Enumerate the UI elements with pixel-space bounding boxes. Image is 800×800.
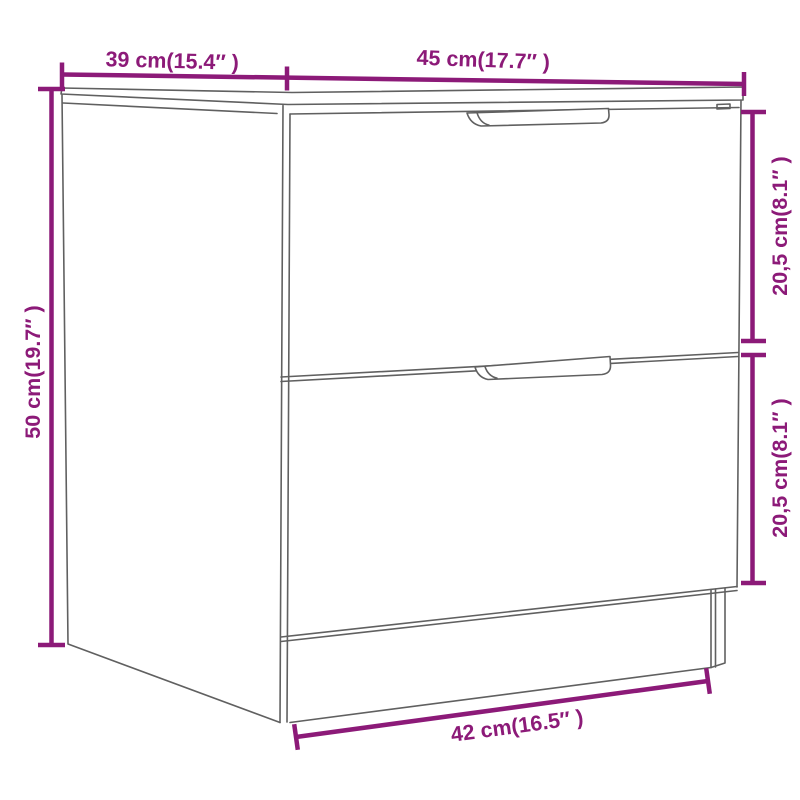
dimension-left: 50 cm(19.7″ ) bbox=[21, 89, 65, 645]
top-panel-outline bbox=[61, 87, 743, 105]
dimension-bottom-tick-right bbox=[706, 668, 710, 694]
lower-drawer-bottom-upper-line bbox=[281, 587, 737, 638]
lower-drawer-bottom-lower-line bbox=[281, 591, 737, 642]
width-dimension-label: 45 cm(17.7″ ) bbox=[416, 46, 550, 75]
dimension-right-upper: 20,5 cm(8.1″ ) bbox=[741, 112, 792, 341]
height-dimension-label: 50 cm(19.7″ ) bbox=[21, 305, 45, 438]
dimension-diagram-canvas: 39 cm(15.4″ ) 45 cm(17.7″ ) 50 cm(19.7″ … bbox=[0, 0, 800, 800]
side-panel-outline bbox=[62, 95, 280, 723]
plinth-right-edge bbox=[711, 589, 716, 668]
nightstand-line-art bbox=[61, 87, 743, 723]
dimension-bottom: 42 cm(16.5″ ) bbox=[294, 668, 710, 750]
front-left-edge-inner bbox=[287, 114, 290, 722]
front-left-edge-outer bbox=[280, 106, 283, 723]
top-right-joint-notch bbox=[717, 104, 730, 109]
lower-drawer-handle bbox=[475, 357, 611, 380]
dimension-bottom-tick-left bbox=[294, 724, 298, 750]
plinth-bottom-edge bbox=[290, 668, 711, 723]
front-right-edge bbox=[737, 100, 741, 587]
dimension-top-line bbox=[62, 75, 744, 85]
lower-drawer-dimension-label: 20,5 cm(8.1″ ) bbox=[768, 398, 792, 537]
side-panel-top-edge bbox=[63, 103, 277, 114]
upper-drawer-dimension-label: 20,5 cm(8.1″ ) bbox=[768, 156, 792, 295]
right-side-bottom-sliver bbox=[711, 589, 725, 668]
dimension-annotations: 39 cm(15.4″ ) 45 cm(17.7″ ) 50 cm(19.7″ … bbox=[21, 46, 792, 750]
depth-dimension-label: 39 cm(15.4″ ) bbox=[105, 47, 239, 74]
dimension-right-lower: 20,5 cm(8.1″ ) bbox=[741, 355, 792, 583]
product-dimension-image: 39 cm(15.4″ ) 45 cm(17.7″ ) 50 cm(19.7″ … bbox=[0, 0, 800, 800]
